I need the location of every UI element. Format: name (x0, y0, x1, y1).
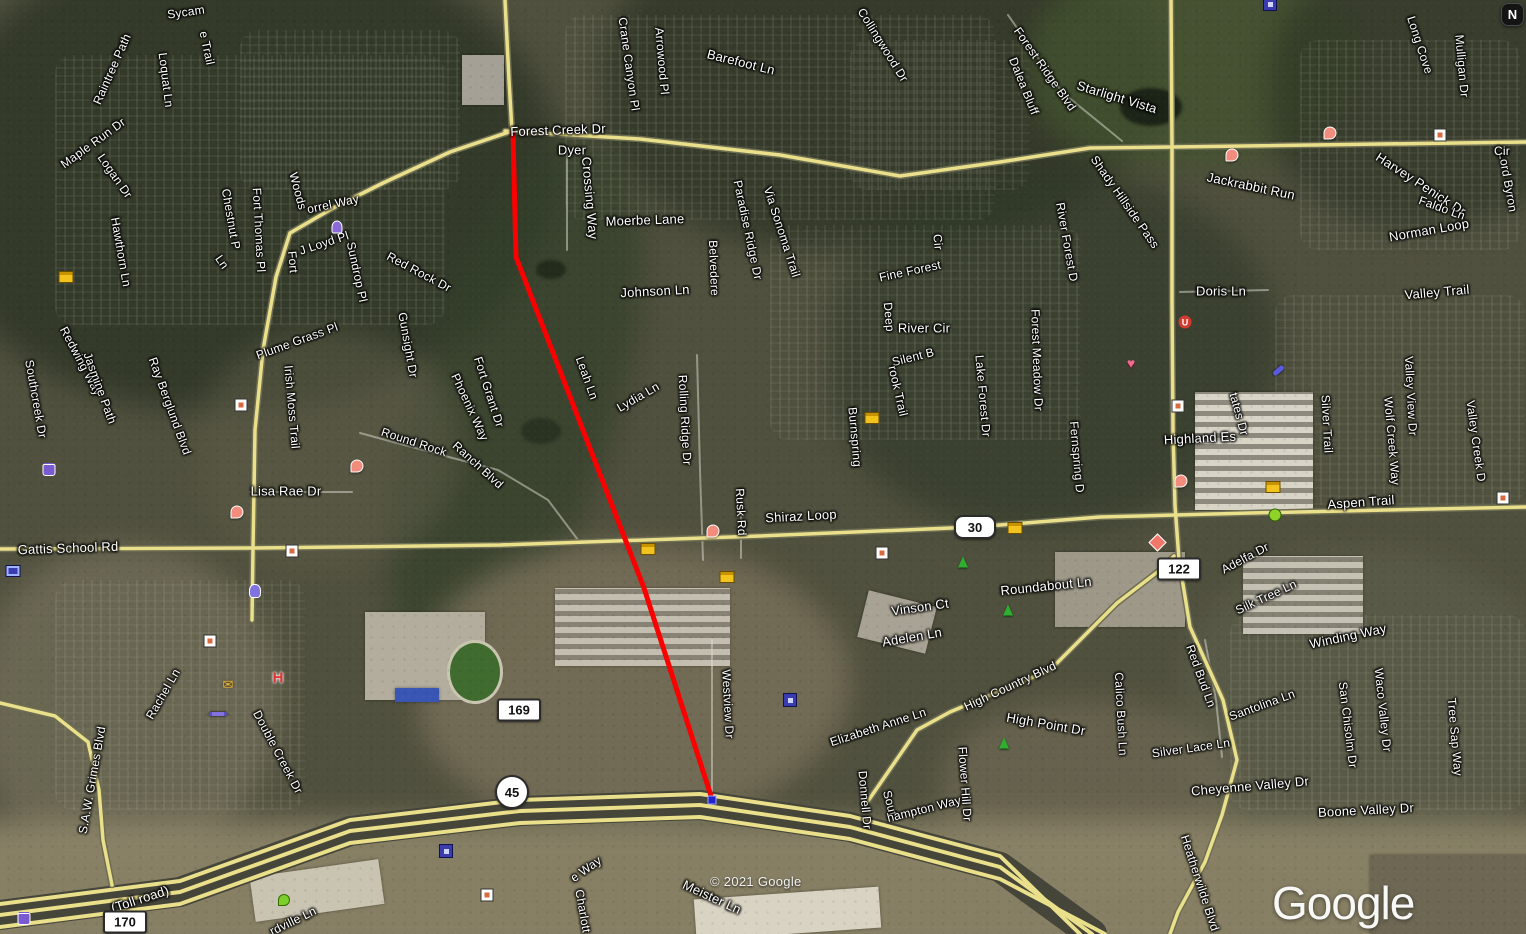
commercial-buildings (555, 588, 730, 666)
warehouse-complex (1195, 392, 1313, 510)
restaurant-icon[interactable] (351, 460, 364, 473)
sports-courts (395, 688, 439, 702)
residential-texture (850, 40, 1030, 190)
school-box-icon[interactable] (1263, 0, 1277, 11)
street-label: Aspen Trail (1327, 492, 1395, 512)
gym-icon[interactable] (209, 712, 227, 716)
poi-box-icon[interactable] (1434, 129, 1447, 142)
poi-box-icon[interactable] (481, 889, 494, 902)
pond (536, 260, 566, 279)
street-label: Belvedere (706, 240, 722, 296)
copyright-text: © 2021 Google (710, 874, 802, 889)
poi-box-icon[interactable] (235, 399, 248, 412)
tree-icon[interactable] (958, 557, 968, 568)
restaurant-icon[interactable] (231, 506, 244, 519)
compass-north-icon[interactable]: N (1501, 3, 1524, 26)
google-earth-logo: Google Earth (1272, 876, 1526, 934)
google-earth-map-viewport[interactable]: Sycame TrailRaintree PathLoquat LnMaple … (0, 0, 1526, 934)
church-icon[interactable] (332, 221, 343, 234)
shopping-icon[interactable] (43, 464, 56, 476)
street-label: Deep (881, 302, 898, 333)
tree-icon[interactable] (999, 738, 1009, 749)
restaurant-icon[interactable] (707, 525, 720, 538)
route-shield-122: 122 (1157, 558, 1201, 581)
school-icon[interactable] (1266, 481, 1281, 493)
street-label: Rolling Ridge Dr (676, 374, 695, 465)
monitor-icon[interactable] (6, 565, 21, 577)
poi-box-icon[interactable] (1172, 400, 1185, 413)
recycle-icon[interactable] (1269, 509, 1282, 522)
restaurant-icon[interactable] (1324, 127, 1337, 140)
hand-icon[interactable] (249, 584, 261, 598)
school-icon[interactable] (641, 543, 656, 555)
running-track (447, 640, 503, 704)
school-box-icon[interactable] (783, 693, 797, 707)
restaurant-icon[interactable] (1175, 475, 1188, 488)
utility-icon[interactable]: U (1179, 316, 1192, 329)
residential-texture (240, 30, 460, 190)
school-icon[interactable] (1008, 522, 1023, 534)
route-shield-45: 45 (495, 775, 529, 809)
mail-icon[interactable]: ✉ (223, 677, 234, 693)
street-label: Cir (1494, 144, 1510, 158)
street-label: Jackrabbit Run (1206, 169, 1297, 202)
poi-box-icon[interactable] (286, 545, 299, 558)
street-label: River Cir (898, 321, 950, 336)
street-label: Calico Bush Ln (1112, 672, 1130, 756)
heart-icon[interactable]: ♥ (1127, 355, 1135, 371)
residential-texture (1300, 40, 1520, 250)
street-label: Johnson Ln (620, 282, 690, 301)
school-icon[interactable] (720, 571, 735, 583)
flower-icon[interactable] (278, 894, 290, 906)
minor-road (697, 355, 703, 560)
school-icon[interactable] (59, 271, 74, 283)
hospital-icon[interactable]: H (273, 670, 284, 687)
restaurant-icon[interactable] (1226, 149, 1239, 162)
street-label: Dyer (558, 143, 586, 158)
building (462, 55, 504, 105)
street-label: Fort (285, 250, 301, 273)
school-box-icon[interactable] (439, 844, 453, 858)
poi-box-icon[interactable] (876, 547, 889, 560)
street-label: Doris Ln (1196, 284, 1246, 299)
street-label: Lisa Rae Dr (251, 484, 322, 499)
street-label: Rusk Rd (733, 488, 749, 536)
poi-box-icon[interactable] (1497, 492, 1510, 505)
shopping-icon[interactable] (18, 913, 31, 925)
route-shield-30: 30 (954, 515, 996, 539)
tools-icon[interactable] (1148, 533, 1166, 551)
street-label: Shiraz Loop (765, 507, 837, 526)
poi-box-icon[interactable] (204, 635, 217, 648)
pond (521, 418, 561, 444)
street-label: Cir (930, 233, 945, 250)
street-label: Silver Trail (1318, 394, 1335, 453)
route-shield-169: 169 (497, 699, 541, 722)
route-shield-170: 170 (103, 911, 147, 934)
street-label: Moerbe Lane (605, 211, 684, 229)
school-icon[interactable] (865, 412, 880, 424)
tree-icon[interactable] (1003, 605, 1013, 616)
